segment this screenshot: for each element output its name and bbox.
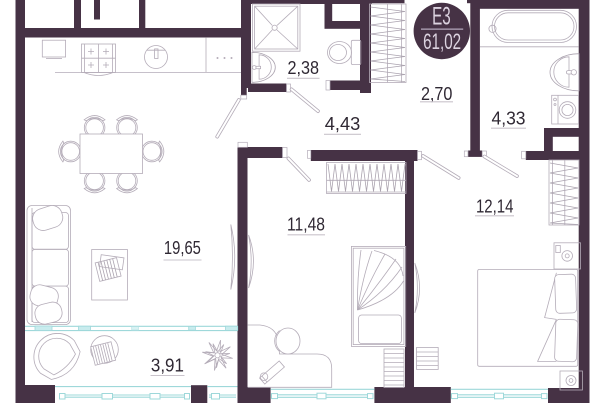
svg-text:4,33: 4,33 bbox=[492, 107, 526, 128]
svg-text:12,14: 12,14 bbox=[476, 196, 514, 217]
svg-text:2,70: 2,70 bbox=[421, 83, 453, 104]
svg-text:4,43: 4,43 bbox=[325, 113, 361, 134]
svg-text:11,48: 11,48 bbox=[287, 214, 325, 235]
svg-text:E3: E3 bbox=[432, 3, 451, 31]
svg-text:3,91: 3,91 bbox=[151, 355, 184, 376]
svg-text:61,02: 61,02 bbox=[423, 29, 461, 54]
svg-text:2,38: 2,38 bbox=[288, 57, 320, 78]
svg-text:19,65: 19,65 bbox=[164, 237, 201, 258]
